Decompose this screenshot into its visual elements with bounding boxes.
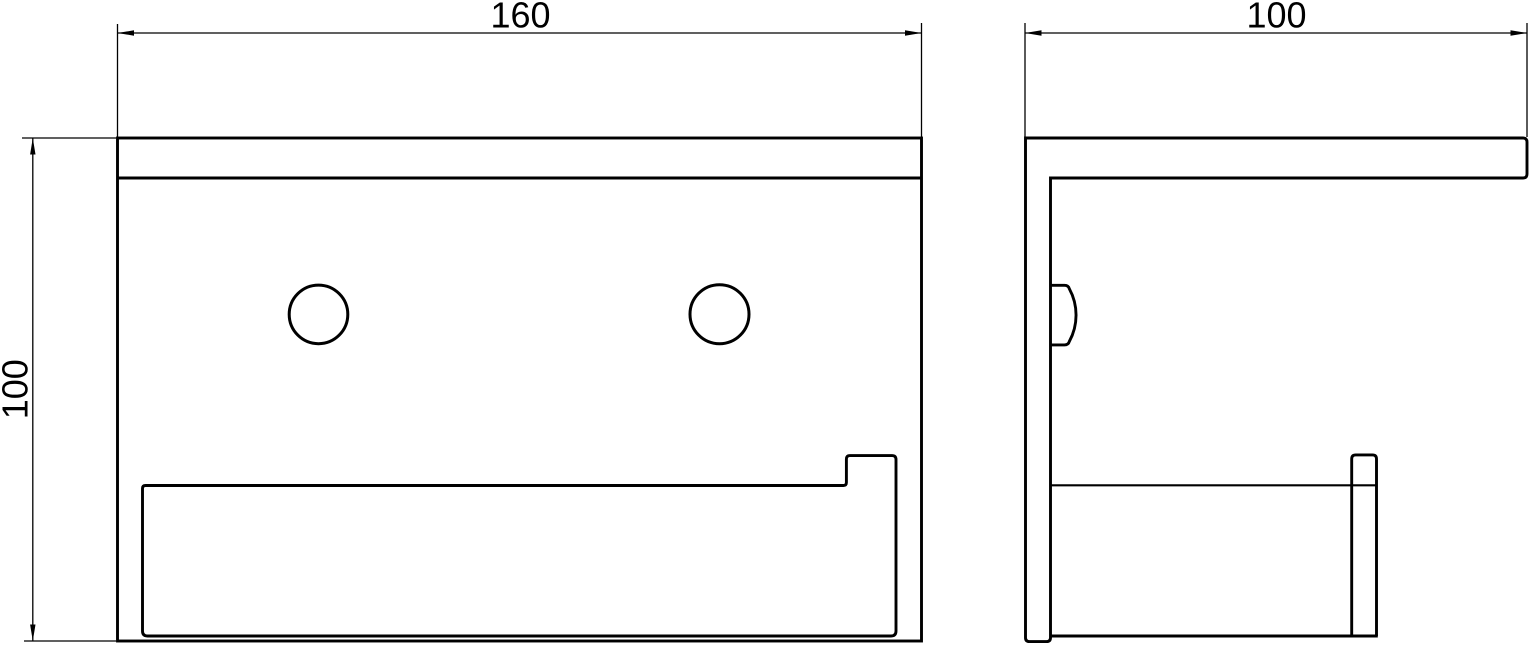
svg-text:100: 100 [1246,0,1306,36]
svg-text:100: 100 [0,359,36,419]
svg-text:160: 160 [490,0,550,36]
